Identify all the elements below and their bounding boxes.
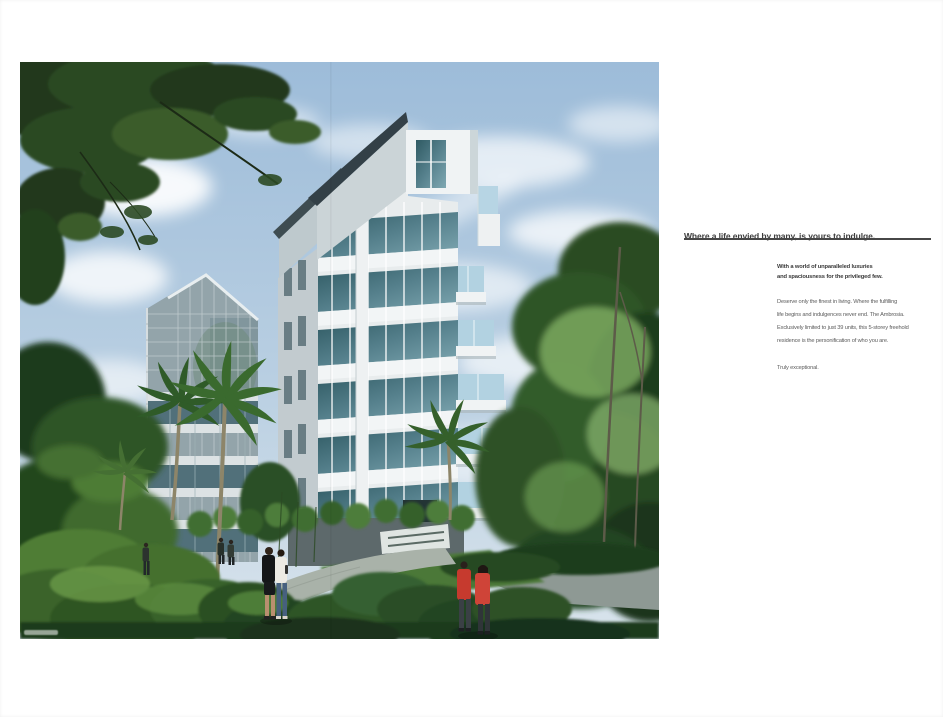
subhead: With a world of unparalleled luxuries an…: [777, 263, 883, 282]
body-line: Exclusively limited to just 39 units, th…: [777, 322, 909, 335]
closing-text: Truly exceptional.: [777, 365, 819, 371]
closing-line: Truly exceptional.: [777, 365, 819, 371]
hero-rendering: [20, 62, 659, 639]
body-line: life begins and indulgences never end. T…: [777, 309, 909, 322]
subhead-line: and spaciousness for the privileged few.: [777, 273, 883, 283]
rendering-svg: [20, 62, 659, 639]
headline-rule: [684, 238, 931, 240]
watermark-mark: [24, 630, 58, 635]
body-line: Deserve only the finest in living. Where…: [777, 296, 909, 309]
body-line: residence is the personification of who …: [777, 335, 909, 348]
body-paragraph: Deserve only the finest in living. Where…: [777, 296, 909, 348]
fold-line: [330, 62, 332, 639]
subhead-line: With a world of unparalleled luxuries: [777, 263, 883, 273]
headline: Where a life envied by many, is yours to…: [684, 231, 943, 241]
brochure-page: Where a life envied by many, is yours to…: [0, 0, 943, 717]
